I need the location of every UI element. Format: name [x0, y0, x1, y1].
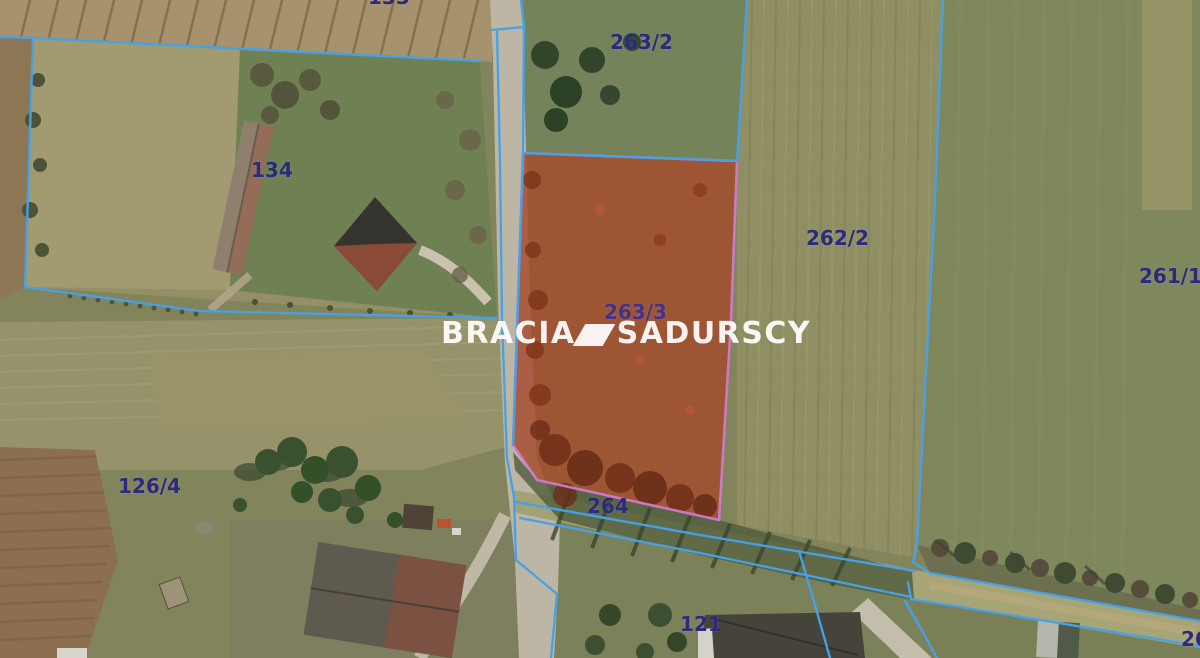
watermark: BRACIA SADURSCY — [441, 316, 811, 351]
parcel-label-261-1: 261/1 — [1139, 264, 1200, 288]
parcel-label-26-partial: 26 — [1181, 627, 1200, 651]
parcel-label-262-2: 262/2 — [806, 226, 869, 250]
watermark-brand-left: BRACIA — [441, 316, 576, 351]
parcel-label-264: 264 — [587, 494, 629, 518]
watermark-brand-right: SADURSCY — [617, 316, 812, 351]
parcel-label-121: 121 — [680, 612, 722, 636]
parcel-label-134: 134 — [251, 158, 293, 182]
aerial-map[interactable]: 133 134 263/2 262/2 261/1 263/3 264 126/… — [0, 0, 1200, 658]
brand-logo-icon — [572, 324, 615, 346]
parcel-label-126-4: 126/4 — [118, 474, 181, 498]
parcel-label-263-2: 263/2 — [610, 30, 673, 54]
parcel-label-133: 133 — [368, 0, 410, 9]
